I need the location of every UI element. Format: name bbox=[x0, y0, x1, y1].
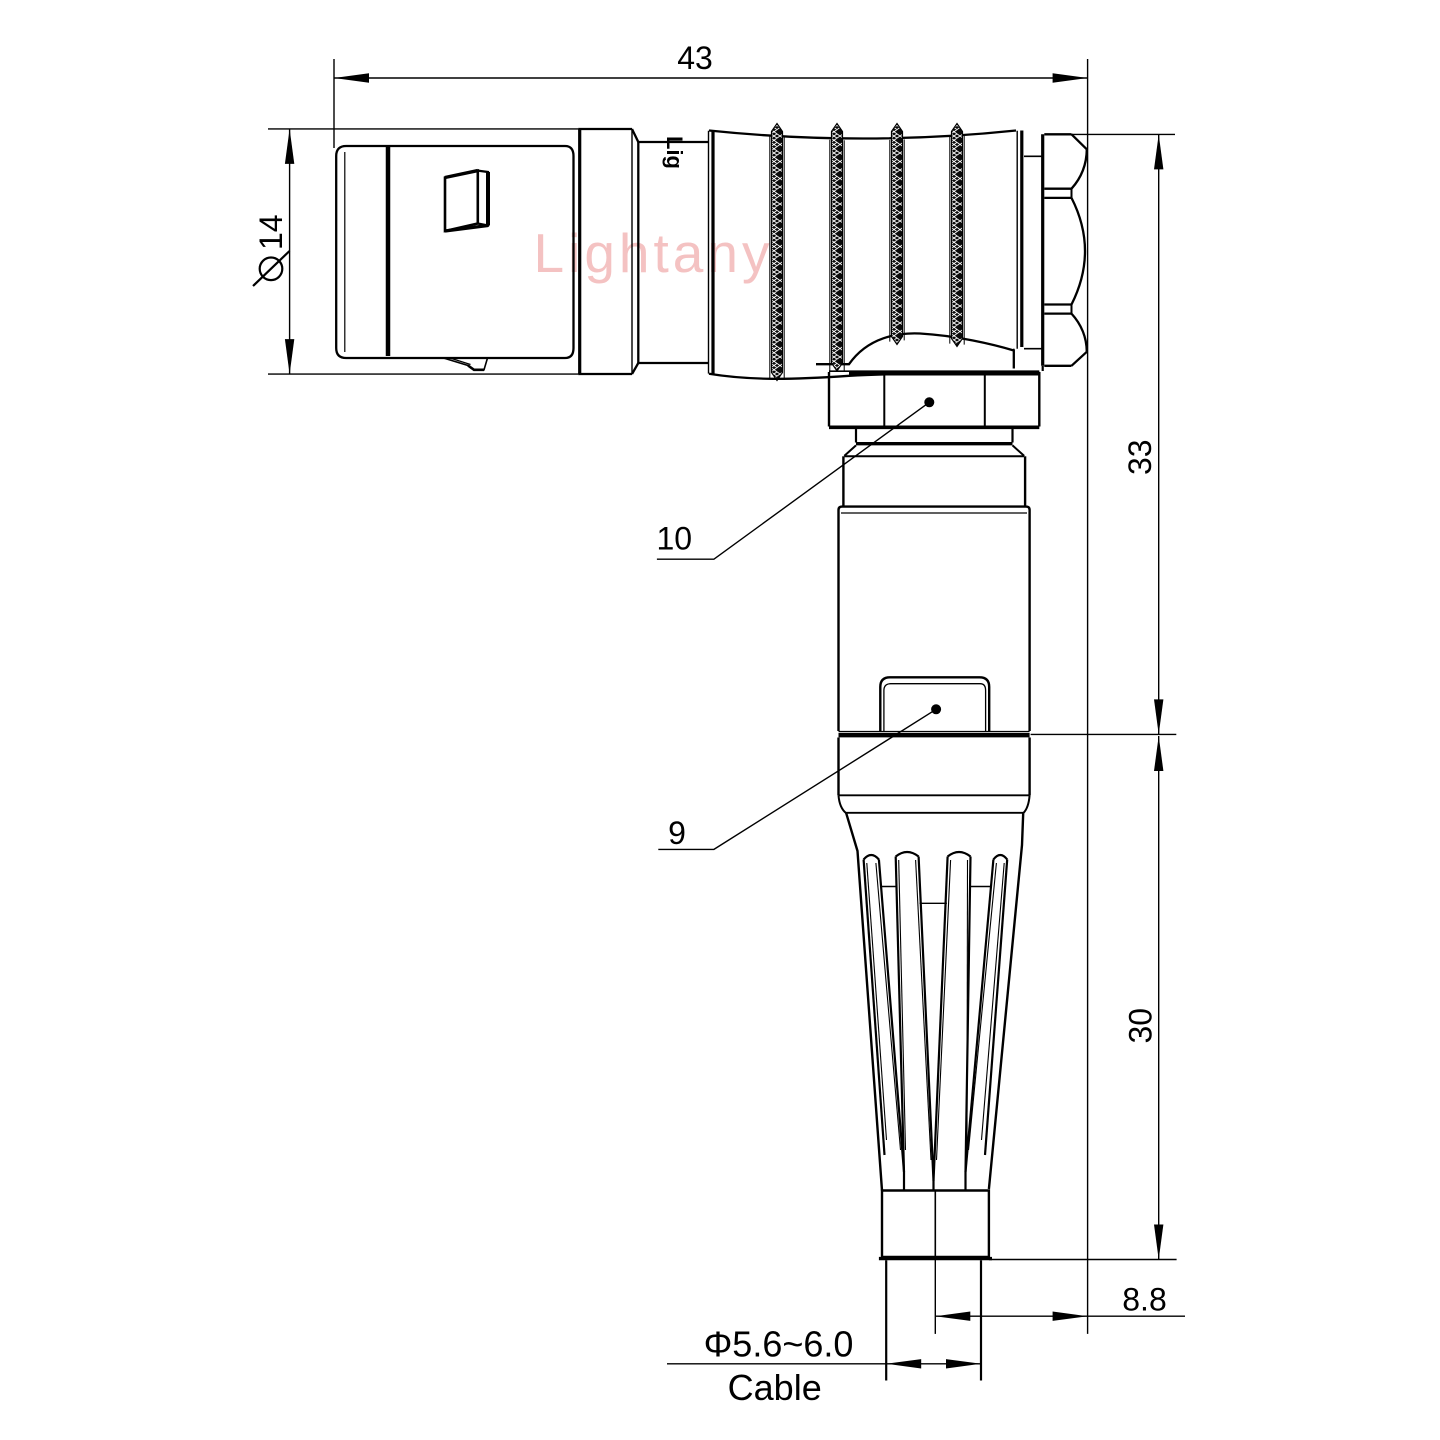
svg-text:10: 10 bbox=[657, 521, 693, 557]
svg-text:Φ5.6~6.0: Φ5.6~6.0 bbox=[704, 1324, 854, 1365]
svg-text:30: 30 bbox=[1123, 1008, 1159, 1044]
svg-text:8.8: 8.8 bbox=[1122, 1282, 1166, 1318]
svg-text:14: 14 bbox=[253, 214, 289, 250]
svg-text:43: 43 bbox=[677, 40, 713, 76]
svg-text:33: 33 bbox=[1122, 439, 1158, 475]
svg-text:9: 9 bbox=[668, 815, 686, 851]
svg-text:Cable: Cable bbox=[728, 1367, 822, 1408]
svg-text:Lig: Lig bbox=[662, 136, 687, 169]
svg-text:Lightany: Lightany bbox=[534, 222, 774, 284]
